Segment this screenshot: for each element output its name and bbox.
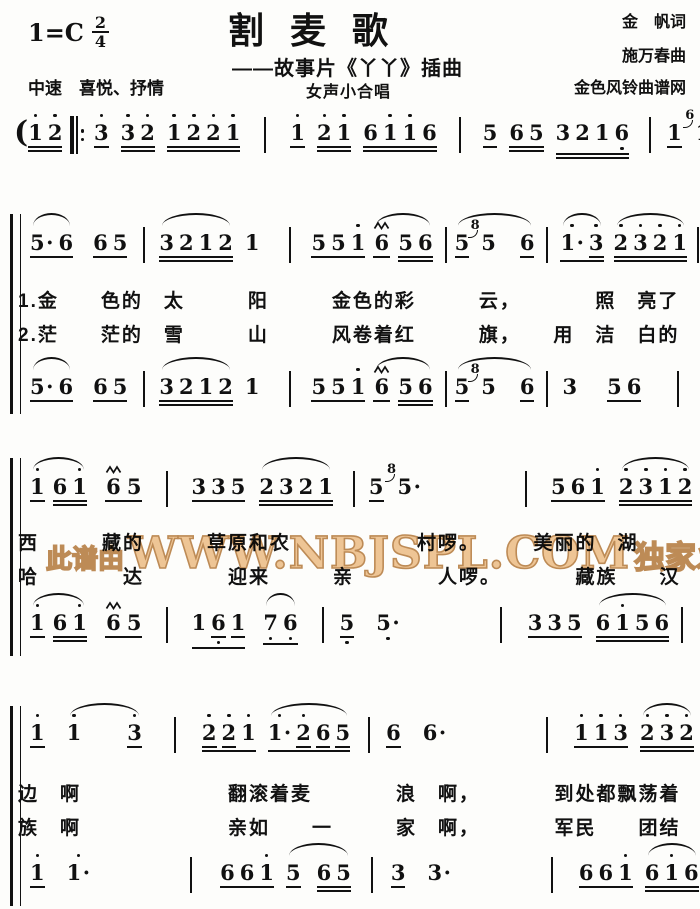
note-6: 6 [373,364,390,402]
octave-dot [77,854,81,858]
note-1: 1 [72,600,87,634]
note-1: 1 [67,710,82,744]
beamed-group: 32 [121,110,155,152]
group-notes: 65 [509,110,543,144]
augmentation-dot: · [414,475,421,498]
note-5: 5 [113,220,128,254]
note-digit: 5 [607,375,622,398]
note-digit: 6 [615,121,630,144]
spacer [692,464,700,465]
spacer [628,710,640,711]
note-digit: 6 [106,611,121,634]
grace-note-8: 8 [470,220,480,238]
group-beam [640,750,694,752]
octave-dot [212,114,216,118]
note-digit: 2 [222,721,237,744]
beamed-group: 6116 [363,110,437,152]
barline [546,717,548,753]
spacer [433,364,445,365]
beamed-group: 61 [53,464,87,506]
note-digit: 6 [240,861,255,884]
group-beam [159,260,233,262]
octave-dot [624,468,628,472]
note-digit: 6 [317,861,332,884]
group-notes: 65 [105,600,142,634]
note-digit: 5 [127,475,142,498]
note-digit: 2 [218,375,233,398]
note-6: 6 [615,110,630,151]
grace-note-8: 8 [470,364,480,382]
note-6: 6· [423,710,446,744]
lyric-line-verse1: 1.金 色的 太 阳 金色的彩 云， 照 亮了 [18,286,679,313]
octave-dot [620,147,624,151]
group-notes: 3212 [159,220,233,254]
group-beam [398,400,432,402]
spacer [405,850,427,851]
spacer [87,464,105,465]
note-1: 1 [231,600,246,638]
grace-hook-icon [468,230,478,238]
note-digit: 3 [127,721,142,744]
group-notes: 661 [220,850,274,884]
spacer [401,710,423,711]
spacer [651,110,667,111]
beamed-group: 2321 [259,464,333,506]
slur-group: 2321 [259,464,333,506]
barline [322,607,324,643]
spacer [259,220,289,221]
group-beam [220,886,274,888]
note-1: 1 [199,220,214,254]
note-2: 2 [187,110,202,144]
octave-dot [386,637,390,641]
music-line-chorus1-upper: 161653352321585·5612312 [30,464,700,507]
note-digit: 5 [331,375,346,398]
note-digit: 3 [159,231,174,254]
note-1: 1 [672,220,687,254]
note-digit: 6 [645,861,660,884]
note-6: 6 [105,464,122,498]
note-digit: 1 [618,861,633,884]
spacer [496,364,520,365]
spacer [633,850,645,851]
octave-dot [619,714,623,718]
note-digit: 6 [211,611,226,634]
spacer [365,364,373,365]
note-digit: 2 [679,721,694,744]
note-digit: 1 [615,611,630,634]
note-digit: 3 [638,475,653,498]
underline-beam [286,886,301,888]
octave-dot [594,224,598,228]
spacer [496,220,520,221]
group-beam [579,886,633,888]
spacer [447,364,455,365]
group-notes: 65 [93,364,127,398]
octave-dot [36,854,40,858]
note-digit: 6 [599,861,614,884]
note-digit: 2 [259,475,274,498]
note-digit: 6 [509,121,524,144]
note-digit: 5 [481,231,496,254]
note-digit: 2 [179,231,194,254]
barline [289,371,291,407]
note-1: 1 [245,220,260,254]
group-notes: 161 [192,600,246,645]
group-notes: 61 [53,464,87,498]
note-1: 1 [351,364,366,398]
underline-beam [30,500,45,502]
spacer [400,600,500,601]
note-digit: 1 [30,475,45,498]
barline [546,371,548,407]
note-2: 2 [575,110,590,144]
octave-dot [670,854,674,858]
group-notes: 2321 [259,464,333,498]
octave-dot [36,714,40,718]
note-6: 6 [418,364,433,398]
note-digit: 5 [455,231,470,254]
note-1: 1 [658,464,673,498]
note-digit: 1 [672,231,687,254]
beamed-group: 3212 [159,364,233,406]
note-digit: 2 [206,121,221,144]
underline-beam [340,636,355,638]
group-notes: 616 [645,850,699,884]
spacer [548,364,562,365]
spacer [687,220,697,221]
spacer [534,220,546,221]
spacer [45,710,67,711]
note-3: 3 [589,220,604,258]
note-digit: 3 [562,375,577,398]
barline [551,857,553,893]
slur-group: 1·3 [560,220,603,262]
note-digit: 6 [684,861,699,884]
note-digit: 1 [231,611,246,634]
note-digit: 3 [211,475,226,498]
note-6: 6 [105,600,122,634]
note-1: 1 [667,110,682,148]
note-digit: 5· [30,375,53,398]
note-digit: 2 [299,475,314,498]
note-3: 3 [121,110,136,144]
note-digit: 3 [556,121,571,144]
note-digit: 6 [58,231,73,254]
beamed-group: 551 [311,220,365,258]
note-1: 1· [696,110,700,144]
note-digit: 7 [263,611,278,634]
octave-dot [100,114,104,118]
system-bracket [10,458,21,656]
beamed-group: 1221 [167,110,241,152]
note-6: 6 [645,850,660,884]
note-2: 2 [653,220,668,254]
beamed-group: 335 [528,600,582,638]
note-5: 5 [481,364,496,398]
octave-dot [34,114,38,118]
spacer [145,364,159,365]
spacer [384,464,386,465]
note-digit: 1· [268,721,291,744]
group-beam [398,260,432,262]
spacer [301,850,317,851]
note-6: 6 [596,600,611,634]
spacer [176,710,202,711]
group-beam [167,146,241,148]
repeat-begin-sign [70,116,84,154]
group-beam [93,256,127,258]
note-1: 1 [167,110,182,144]
group-notes: 561 [551,464,605,498]
spacer [351,110,363,111]
octave-dot [388,114,392,118]
spacer [548,220,560,221]
spacer [90,850,190,851]
note-5: 5 [335,710,350,748]
note-digit: 2 [678,475,693,498]
note-digit: 2 [653,231,668,254]
note-3: 3 [633,220,648,254]
note-digit: 2 [202,721,217,744]
note-digit: 2 [640,721,655,744]
octave-dot [217,641,221,645]
note-digit: 6 [316,721,331,744]
note-digit: 2 [317,121,332,144]
barline [697,227,699,263]
open-paren: ( [14,113,28,153]
note-digit: 1 [245,375,260,398]
group-beam [311,256,365,258]
group-beam [596,636,670,638]
group-beam [398,256,432,258]
beamed-group: 56 [607,364,641,402]
note-digit: 1 [595,121,610,144]
barline [445,371,447,407]
spacer [350,710,368,711]
note-5: 5 [311,220,326,254]
barline [677,371,679,407]
octave-dot [231,114,235,118]
grace-hook-icon [683,120,693,128]
note-1: 1 [30,710,45,748]
octave-dot [289,637,293,641]
augmentation-dot: · [439,721,446,744]
beamed-group: 65 [105,600,142,638]
spacer [548,710,574,711]
note-6: 6 [509,110,524,144]
note-digit: 6 [520,231,535,254]
group-notes: 232 [640,710,694,744]
note-digit: 1 [574,721,589,744]
lyric-line-verse2: 2.茫 茫的 雪 山 风卷着红 旗， 用 洁 白的 [18,320,679,347]
octave-dot [296,114,300,118]
spacer [421,464,525,465]
watermark-suffix: 独家发布 [634,532,700,577]
note-2: 2 [218,364,233,398]
group-beam [556,157,630,159]
augmentation-dot: · [392,611,399,634]
note-6: 6 [418,220,433,254]
note-3: 3 [127,710,142,748]
group-beam [192,500,246,502]
note-3: 3 [94,110,109,148]
group-notes: 65 [93,220,127,254]
note-3: 3 [562,364,577,398]
spacer [81,710,127,711]
underline-beam [211,636,226,638]
note-digit: 1 [30,861,45,884]
note-digit: 3 [391,861,406,884]
group-notes: 1·265 [268,710,350,748]
note-1: 1 [30,850,45,888]
note-3: 3 [528,600,543,634]
spacer [324,600,340,601]
group-beam [259,500,333,502]
spacer [245,464,259,465]
note-digit: 5 [127,611,142,634]
spacer [127,220,143,221]
octave-dot [323,114,327,118]
octave-dot [278,714,282,718]
note-digit: 1 [30,721,45,744]
note-digit: 2 [575,121,590,144]
spacer [390,220,398,221]
group-beam [311,400,365,402]
group-beam [640,746,694,748]
note-digit: 6 [571,475,586,498]
group-beam [105,636,142,638]
spacer [245,600,263,601]
beamed-group: 561 [551,464,605,502]
group-beam [28,146,62,148]
note-digit: 1 [403,121,418,144]
spacer [45,850,67,851]
group-beam [363,146,437,148]
music-line-verse-lower: 5·665321215516565856356 [30,364,679,407]
spacer [629,110,649,111]
note-6: 6 [58,220,73,254]
note-digit: 1· [696,121,700,144]
slur-group: 161 [30,464,87,506]
note-digit: 2 [218,231,233,254]
group-notes: 32 [121,110,155,144]
underline-beam [290,146,305,148]
note-6: 6 [571,464,586,498]
note-digit: 6 [418,231,433,254]
note-1: 1 [590,464,605,498]
note-digit: 1 [72,611,87,634]
watermark-domain: WWW.NBJSPL.COM [128,528,630,579]
slur-group: 5·6 [30,220,73,258]
beamed-group: 56 [398,364,432,406]
note-digit: 2 [179,375,194,398]
octave-dot [665,714,669,718]
spacer [354,600,376,601]
watermark-prefix: 此谱由 [46,539,124,576]
note-digit: 3 [159,375,174,398]
spacer [437,110,459,111]
note-2: 2 [640,710,655,744]
underline-beam [373,400,390,402]
note-6: 6 [211,600,226,645]
group-beam [614,260,688,262]
note-digit: 1· [67,861,90,884]
octave-dot [408,114,412,118]
note-digit: 1 [72,475,87,498]
note-digit: 6 [422,121,437,144]
spacer [274,850,286,851]
note-1: 1 [351,220,366,254]
group-beam [398,404,432,406]
note-5: 5 [331,220,346,254]
group-notes: 551 [311,220,365,254]
group-beam [93,400,127,402]
note-6: 6 [53,464,68,498]
note-digit: 5 [231,475,246,498]
slur-group: 13 [67,710,142,748]
note-digit: 3 [660,721,675,744]
octave-dot [580,714,584,718]
spacer [373,850,391,851]
note-digit: 1 [318,475,333,498]
note-2: 2 [179,220,194,254]
spacer [534,364,546,365]
spacer [256,710,268,711]
octave-dot [126,114,130,118]
barline [371,857,373,893]
beamed-group: 616 [645,850,699,892]
octave-dot [78,468,82,472]
group-beam [105,500,142,502]
note-2: 2 [206,110,221,144]
beamed-group: 61 [53,600,87,642]
octave-dot [639,224,643,228]
group-notes: 3216 [556,110,630,151]
group-beam [363,150,437,152]
note-5: 5 [113,364,128,398]
group-beam [317,146,351,148]
note-digit: 6 [363,121,378,144]
group-beam [560,260,603,262]
beamed-group: 76 [263,600,297,645]
group-notes: 335 [192,464,246,498]
note-5: 5 [607,364,622,398]
group-notes: 76 [263,600,297,641]
note-digit: 6 [375,375,390,398]
octave-dot [53,114,57,118]
octave-dot [646,714,650,718]
note-1: 1 [245,364,260,398]
system-bracket [10,214,21,414]
note-5: 5· [398,464,421,498]
note-digit: 5· [30,231,53,254]
slur-group: 232 [640,710,694,752]
note-digit: 6 [418,375,433,398]
spacer [62,110,70,111]
note-1: 1 [383,110,398,144]
note-digit: 1 [594,721,609,744]
note-6: 6 [53,600,68,634]
group-notes: 335 [528,600,582,634]
note-digit: 1· [560,231,583,254]
note-digit: 6 [93,231,108,254]
beamed-group: 6156 [596,600,670,642]
slur-group: 6156 [596,600,670,642]
grace-hook-icon [468,374,478,382]
note-digit: 1 [337,121,352,144]
note-digit: 6 [596,611,611,634]
